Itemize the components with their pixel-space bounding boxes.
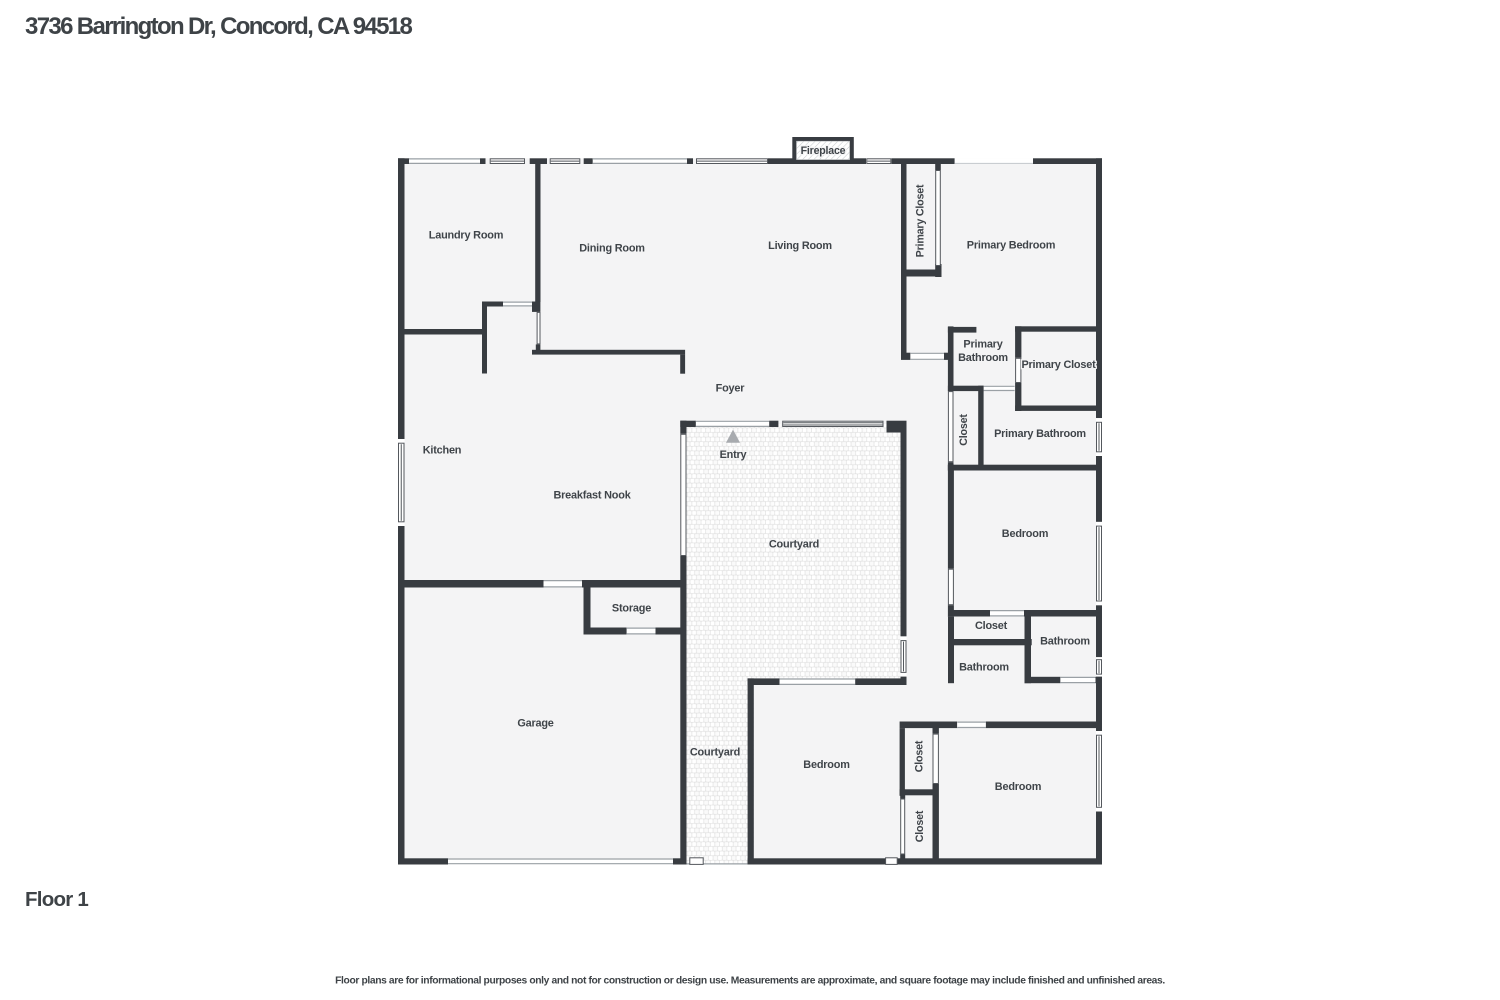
svg-text:Storage: Storage xyxy=(612,603,651,615)
svg-text:Entry: Entry xyxy=(720,449,747,461)
svg-text:Primary Closet: Primary Closet xyxy=(915,184,927,257)
svg-text:Courtyard: Courtyard xyxy=(769,538,819,550)
svg-text:Floor plans are for informatio: Floor plans are for informational purpos… xyxy=(335,976,1165,987)
svg-text:Garage: Garage xyxy=(517,718,553,730)
svg-text:Courtyard: Courtyard xyxy=(690,747,740,759)
svg-text:Bedroom: Bedroom xyxy=(803,759,850,771)
svg-text:Primary Bathroom: Primary Bathroom xyxy=(994,428,1086,440)
svg-text:Bathroom: Bathroom xyxy=(1040,636,1090,648)
svg-text:Bathroom: Bathroom xyxy=(959,662,1009,674)
svg-text:Floor 1: Floor 1 xyxy=(25,888,88,911)
svg-text:Kitchen: Kitchen xyxy=(423,445,462,457)
svg-text:Laundry Room: Laundry Room xyxy=(429,230,504,242)
svg-text:Closet: Closet xyxy=(958,414,970,446)
svg-text:Breakfast Nook: Breakfast Nook xyxy=(553,489,631,501)
svg-text:3736 Barrington Dr, Concord, C: 3736 Barrington Dr, Concord, CA 94518 xyxy=(25,13,412,40)
svg-text:Dining Room: Dining Room xyxy=(579,243,645,255)
svg-text:Closet: Closet xyxy=(975,620,1008,632)
svg-text:Primary Closet: Primary Closet xyxy=(1021,359,1096,371)
svg-text:Living Room: Living Room xyxy=(768,240,832,252)
svg-text:Foyer: Foyer xyxy=(716,383,746,395)
svg-text:Bedroom: Bedroom xyxy=(995,781,1042,793)
svg-text:Fireplace: Fireplace xyxy=(801,145,846,157)
svg-text:Primary Bedroom: Primary Bedroom xyxy=(967,240,1056,252)
svg-text:Bedroom: Bedroom xyxy=(1002,528,1049,540)
svg-text:Bathroom: Bathroom xyxy=(958,352,1008,364)
svg-text:Primary: Primary xyxy=(963,338,1002,350)
svg-text:Closet: Closet xyxy=(914,810,926,842)
svg-text:Closet: Closet xyxy=(914,740,926,772)
